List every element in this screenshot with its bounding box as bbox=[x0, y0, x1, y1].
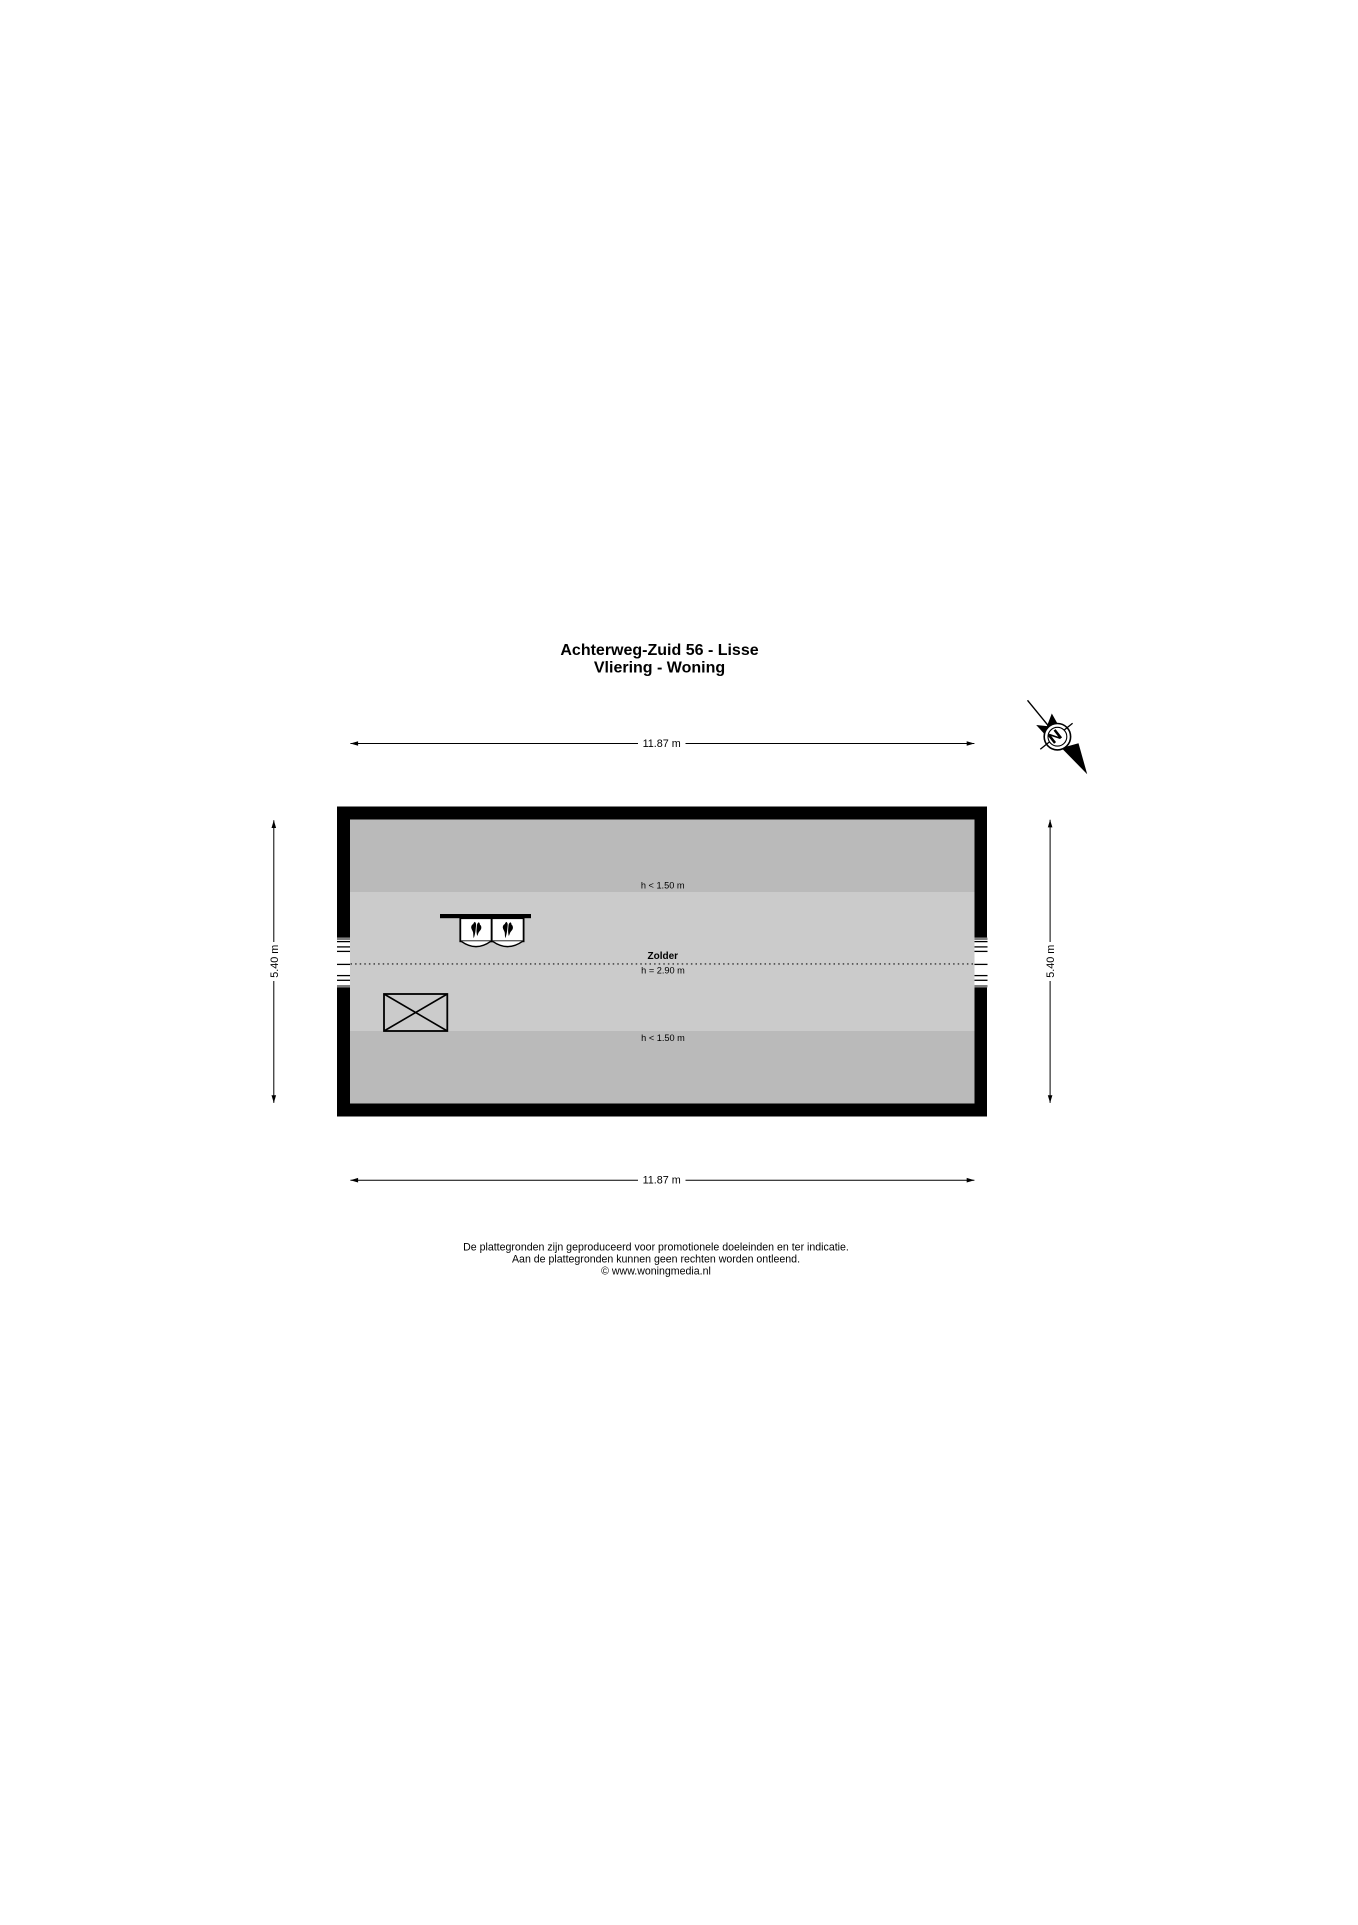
svg-text:5.40 m: 5.40 m bbox=[1045, 945, 1057, 978]
svg-text:h = 2.90 m: h = 2.90 m bbox=[641, 965, 685, 975]
svg-text:Aan de plattegronden kunnen ge: Aan de plattegronden kunnen geen rechten… bbox=[512, 1254, 800, 1266]
svg-text:Achterweg-Zuid 56 - Lisse: Achterweg-Zuid 56 - Lisse bbox=[560, 642, 758, 659]
svg-text:© www.woningmedia.nl: © www.woningmedia.nl bbox=[601, 1266, 711, 1278]
svg-text:De plattegronden zijn geproduc: De plattegronden zijn geproduceerd voor … bbox=[463, 1242, 849, 1254]
svg-text:h < 1.50 m: h < 1.50 m bbox=[641, 881, 685, 891]
svg-text:5.40 m: 5.40 m bbox=[269, 945, 281, 978]
svg-text:h < 1.50 m: h < 1.50 m bbox=[641, 1033, 685, 1043]
svg-text:Vliering - Woning: Vliering - Woning bbox=[594, 660, 725, 677]
svg-text:11.87 m: 11.87 m bbox=[643, 1175, 681, 1187]
svg-text:Zolder: Zolder bbox=[648, 951, 679, 962]
svg-text:11.87 m: 11.87 m bbox=[643, 738, 681, 750]
